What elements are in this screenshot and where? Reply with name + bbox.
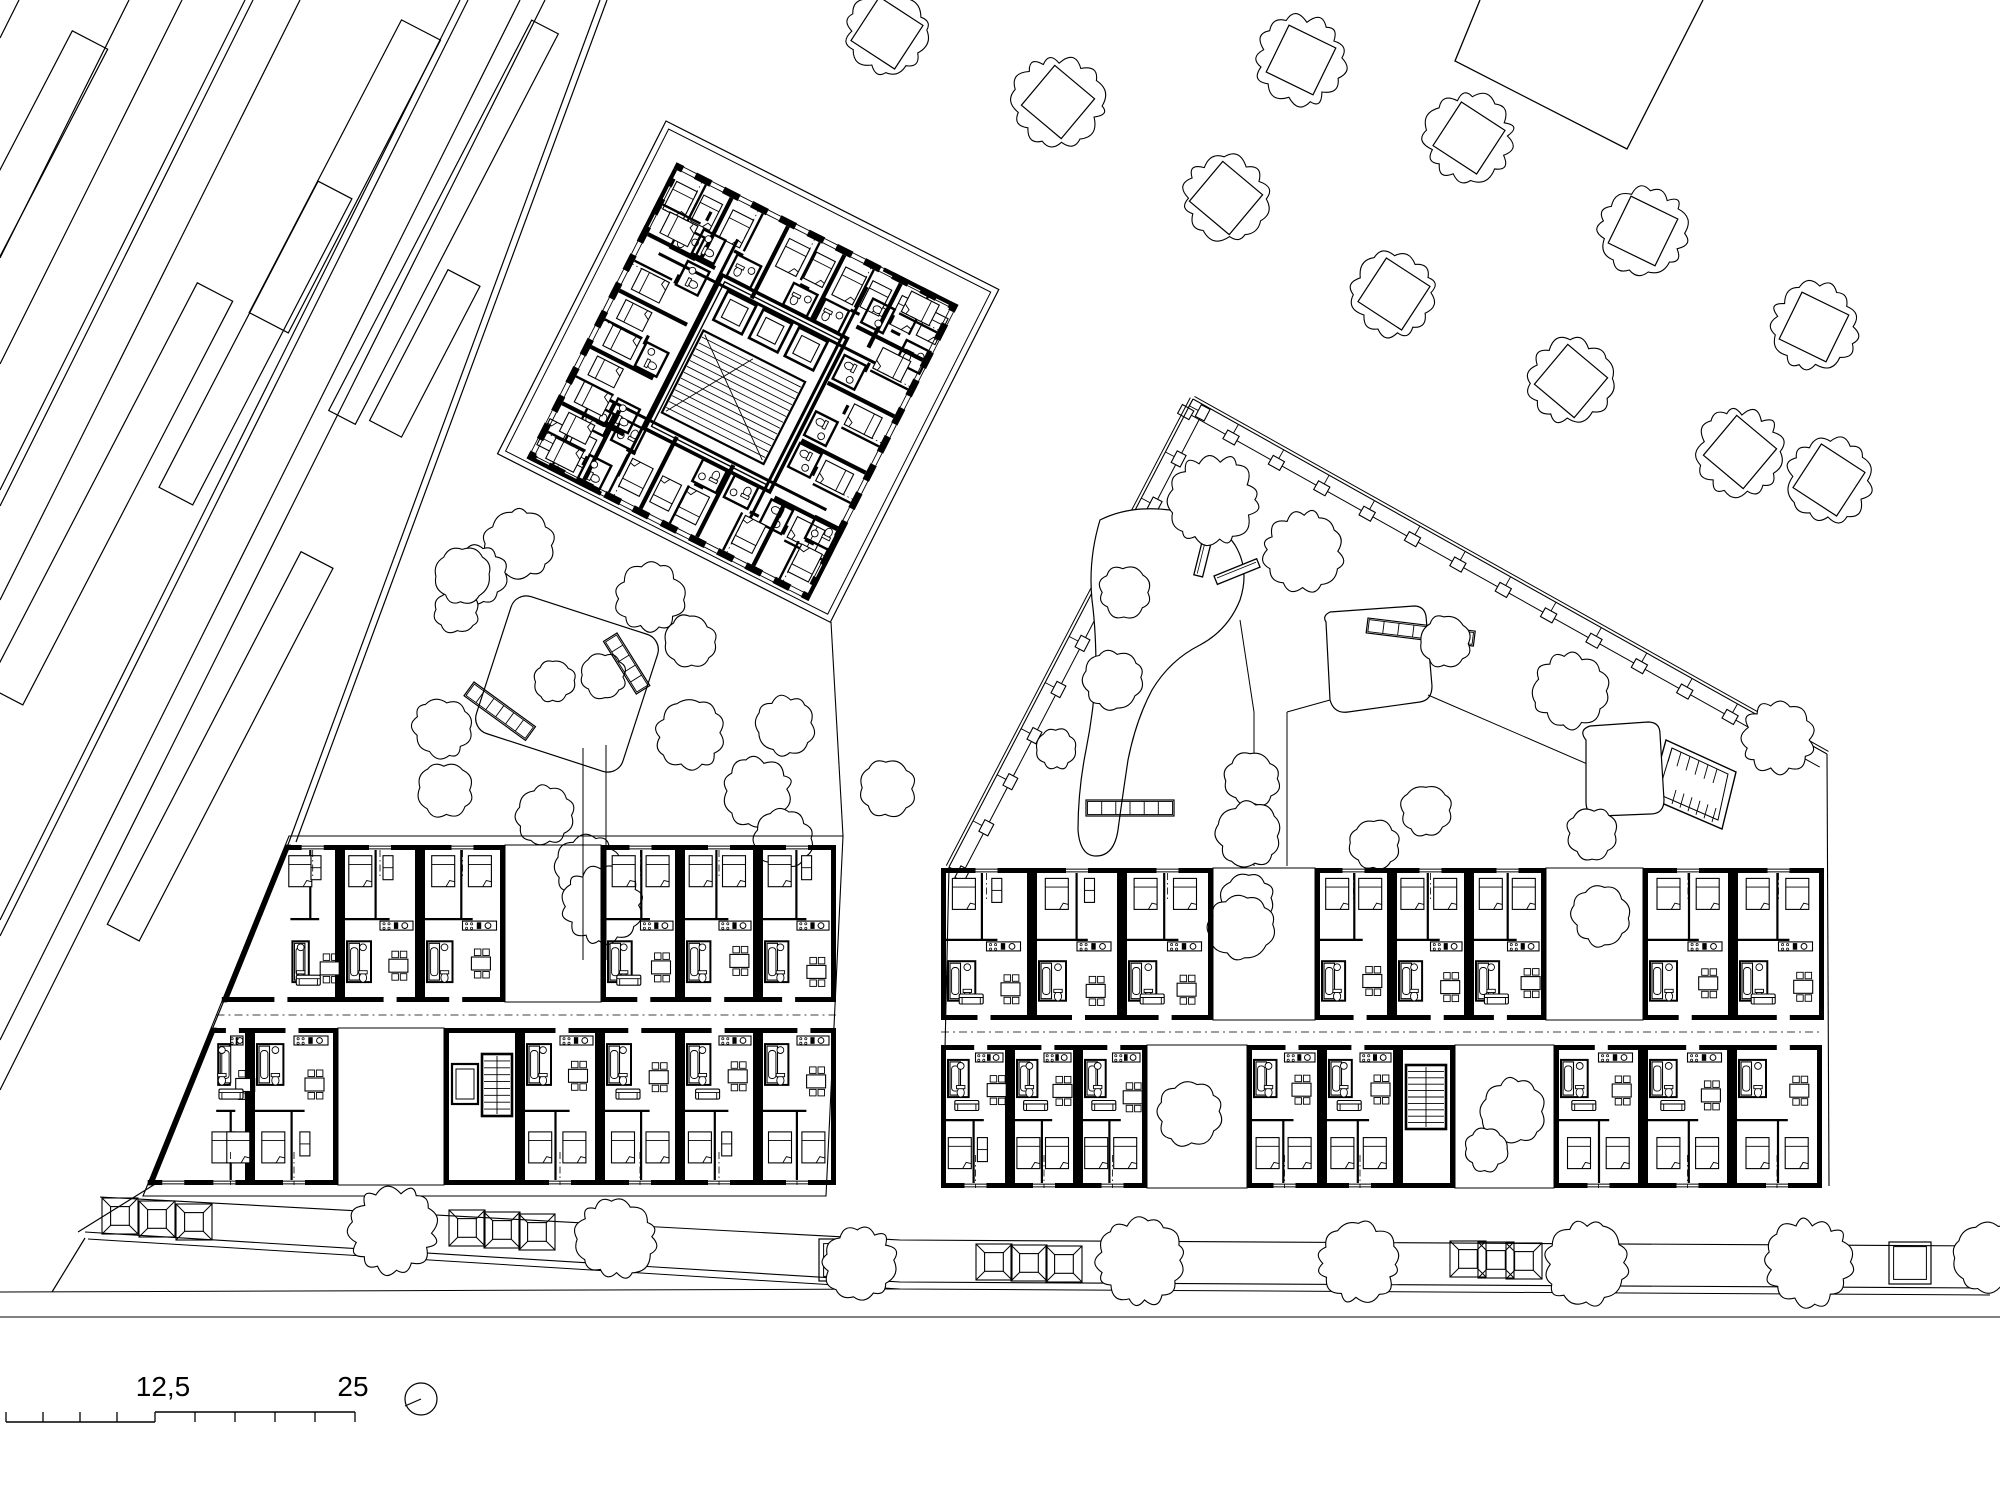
- svg-text:12,5: 12,5: [136, 1371, 191, 1402]
- svg-text:25: 25: [337, 1371, 368, 1402]
